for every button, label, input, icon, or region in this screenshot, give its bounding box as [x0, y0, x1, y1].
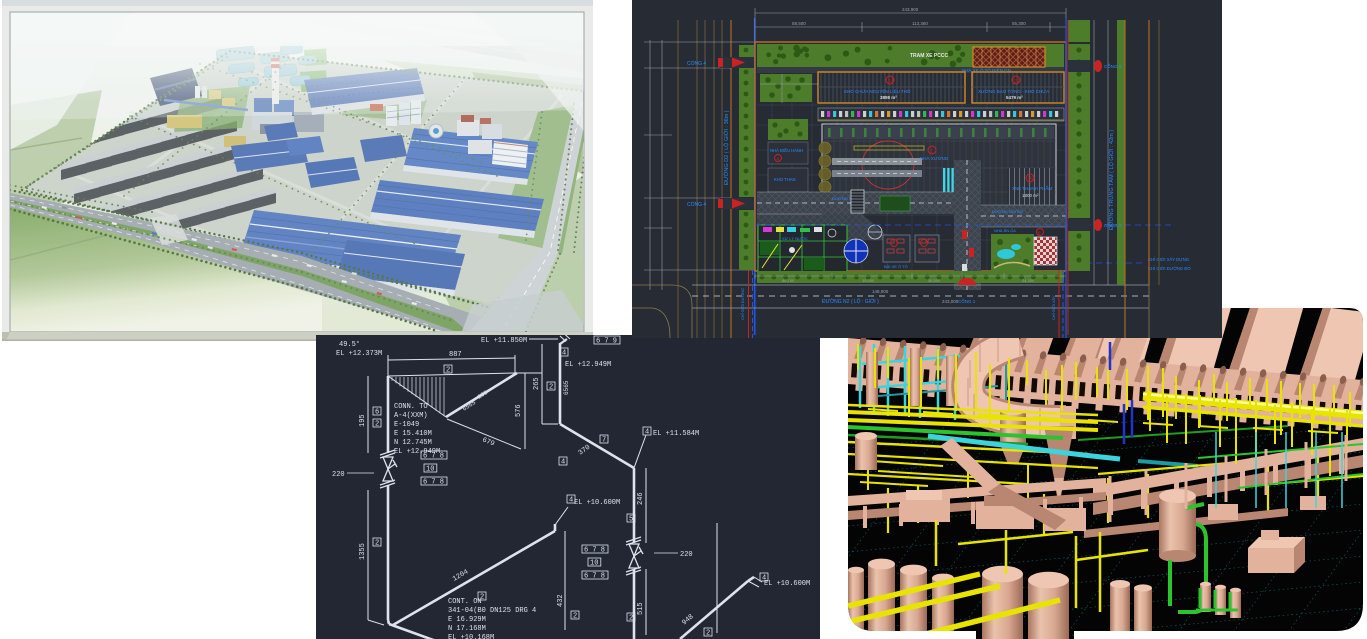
svg-text:432: 432	[557, 594, 565, 607]
svg-text:CHỈ GIỚI XÂY: CHỈ GIỚI XÂY	[1051, 295, 1056, 320]
svg-text:246: 246	[637, 492, 645, 505]
svg-text:CHỈ GIỚI XÂY DỰNG: CHỈ GIỚI XÂY DỰNG	[1148, 257, 1189, 262]
svg-text:CỔNG 2: CỔNG 2	[1104, 222, 1122, 228]
svg-text:7: 7	[602, 437, 606, 445]
svg-text:6: 6	[375, 409, 379, 417]
svg-text:2: 2	[375, 421, 379, 429]
svg-text:148,000: 148,000	[872, 289, 889, 294]
svg-text:15,000: 15,000	[862, 278, 875, 283]
svg-text:576: 576	[515, 404, 523, 417]
svg-text:CỔNG 1: CỔNG 1	[958, 298, 976, 304]
svg-text:6565: 6565	[563, 380, 570, 395]
svg-text:36,500: 36,500	[928, 278, 941, 283]
svg-text:24,300: 24,300	[1022, 278, 1035, 283]
svg-text:5479 m²: 5479 m²	[1006, 95, 1023, 100]
svg-text:NHÀ ĐIỀU HÀNH: NHÀ ĐIỀU HÀNH	[770, 148, 803, 153]
svg-text:NHÀ ĂN CA: NHÀ ĂN CA	[994, 228, 1016, 233]
svg-text:5: 5	[629, 516, 633, 524]
svg-text:XỪ LÝ NƯỚC: XỪ LÝ NƯỚC	[782, 236, 808, 241]
svg-text:KHO THAN: KHO THAN	[774, 177, 796, 182]
svg-text:2: 2	[446, 367, 450, 375]
svg-text:10: 10	[590, 560, 598, 568]
svg-text:1800 m²: 1800 m²	[1022, 193, 1039, 198]
svg-text:243,900: 243,900	[902, 7, 919, 12]
svg-text:10: 10	[426, 466, 434, 474]
svg-text:195: 195	[359, 414, 367, 427]
svg-text:NHÀ XƯỞNG: NHÀ XƯỞNG	[920, 155, 949, 161]
svg-text:4: 4	[561, 459, 565, 467]
svg-text:ĐƯỜNG NỘI BỘ: ĐƯỜNG NỘI BỘ	[992, 209, 1023, 214]
svg-text:CONT. ON: CONT. ON	[448, 598, 482, 606]
svg-text:EL +12.373M: EL +12.373M	[336, 350, 382, 358]
svg-text:EL +11.584M: EL +11.584M	[653, 430, 699, 438]
svg-text:2: 2	[549, 384, 553, 392]
svg-text:2: 2	[706, 630, 710, 638]
svg-text:ĐƯỜNG N2 ( LỘ : GIỚI ): ĐƯỜNG N2 ( LỘ : GIỚI )	[822, 298, 879, 305]
svg-text:13: 13	[888, 79, 894, 85]
svg-text:86,100: 86,100	[782, 278, 795, 283]
svg-text:XƯỞNG BAO TỜNG - KHO CHỨA: XƯỞNG BAO TỜNG - KHO CHỨA	[978, 88, 1049, 94]
svg-text:A-4(XXM): A-4(XXM)	[394, 412, 428, 420]
svg-text:ĐƯỜNG D2 ( LỘ GIỚI : 36m ): ĐƯỜNG D2 ( LỘ GIỚI : 36m )	[723, 110, 730, 185]
svg-text:58,500: 58,500	[792, 21, 806, 26]
svg-text:6 7 8: 6 7 8	[423, 479, 444, 487]
svg-text:265: 265	[533, 377, 541, 390]
svg-text:1355: 1355	[359, 543, 367, 560]
svg-text:CHỈ GIỚI ĐƯỜNG ĐỎ: CHỈ GIỚI ĐƯỜNG ĐỎ	[1148, 266, 1191, 271]
svg-text:E 15.410M: E 15.410M	[394, 430, 432, 438]
svg-text:E 16.929M: E 16.929M	[448, 616, 486, 624]
svg-text:EL +10.168M: EL +10.168M	[448, 634, 494, 639]
svg-text:49.5°: 49.5°	[339, 340, 360, 349]
svg-text:6 7 8: 6 7 8	[423, 453, 444, 461]
svg-text:CONN. TO: CONN. TO	[394, 403, 428, 411]
svg-text:4: 4	[645, 429, 649, 437]
svg-text:15: 15	[1028, 177, 1034, 183]
svg-text:CỔNG 4: CỔNG 4	[687, 60, 706, 67]
svg-text:1: 1	[930, 149, 933, 155]
svg-text:N 12.745M: N 12.745M	[394, 439, 432, 447]
svg-text:EL +11.850M: EL +11.850M	[481, 337, 527, 345]
svg-text:4: 4	[562, 350, 566, 358]
svg-text:CỔNG 4: CỔNG 4	[687, 201, 706, 208]
svg-text:4: 4	[569, 497, 573, 505]
svg-text:6 7 8: 6 7 8	[584, 573, 605, 581]
svg-text:ĐƯỜNG TRUNG TÂM ( LỘ GIỚI : 42: ĐƯỜNG TRUNG TÂM ( LỘ GIỚI : 42m )	[1108, 130, 1115, 230]
svg-text:55,300: 55,300	[1012, 21, 1026, 26]
svg-text:6 7 8: 6 7 8	[584, 547, 605, 555]
svg-text:E-1049: E-1049	[394, 421, 419, 429]
svg-text:3898 m²: 3898 m²	[880, 95, 897, 100]
svg-text:BÃI XE Ô TÔ: BÃI XE Ô TÔ	[884, 264, 908, 269]
svg-text:113,360: 113,360	[912, 21, 928, 26]
svg-text:220: 220	[332, 471, 345, 479]
svg-text:EL +12.949M: EL +12.949M	[565, 361, 611, 369]
svg-text:220: 220	[680, 551, 693, 559]
svg-text:341-04(B0 DN125 DRG 4: 341-04(B0 DN125 DRG 4	[448, 607, 536, 615]
svg-text:N 17.168M: N 17.168M	[448, 625, 486, 633]
svg-text:6 7 9: 6 7 9	[596, 338, 617, 346]
svg-text:EL +10.600M: EL +10.600M	[764, 580, 810, 588]
svg-text:KHO CHỨA NGUYÊN LIỆU THÔ: KHO CHỨA NGUYÊN LIỆU THÔ	[844, 87, 911, 94]
svg-text:XNK THÀNH PHẨM: XNK THÀNH PHẨM	[1012, 185, 1052, 191]
svg-text:2: 2	[573, 613, 577, 621]
svg-text:TRAM XE PCCC: TRAM XE PCCC	[910, 53, 948, 59]
svg-text:14: 14	[1014, 79, 1020, 85]
svg-text:887: 887	[449, 351, 462, 359]
svg-text:EL +10.600M: EL +10.600M	[574, 499, 620, 507]
svg-text:CỔNG 3: CỔNG 3	[1104, 63, 1122, 69]
svg-text:CHỈ GIỚI ĐƯỜNG: CHỈ GIỚI ĐƯỜNG	[740, 288, 745, 320]
svg-text:243,000: 243,000	[942, 299, 959, 304]
svg-text:515: 515	[637, 602, 645, 615]
svg-text:2: 2	[375, 540, 379, 548]
svg-text:2: 2	[629, 615, 633, 623]
